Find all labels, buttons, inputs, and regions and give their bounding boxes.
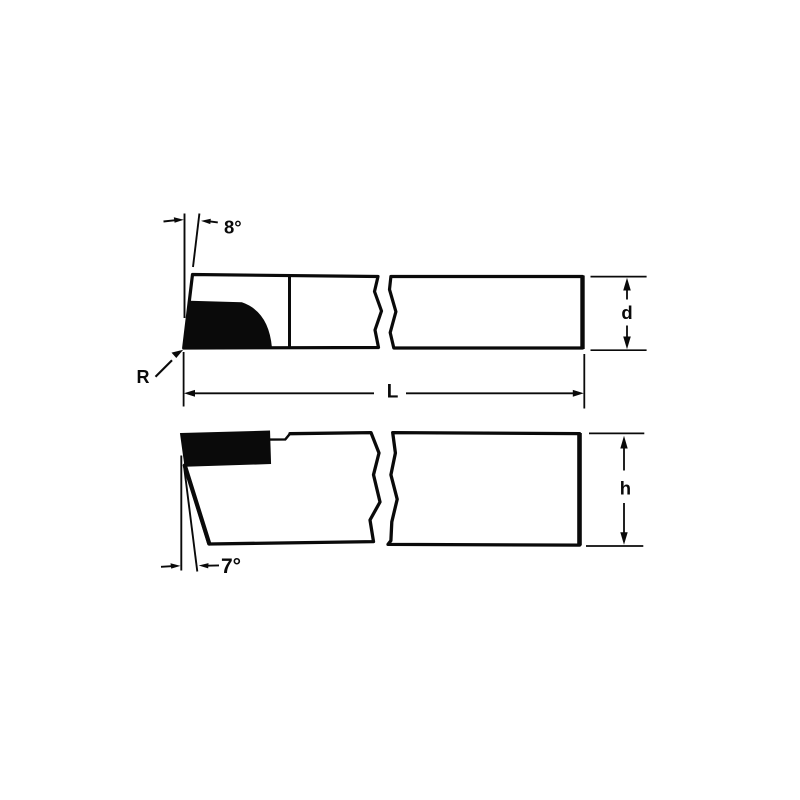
svg-text:R: R	[137, 367, 150, 387]
svg-text:L: L	[387, 382, 399, 403]
svg-text:h: h	[620, 478, 631, 499]
svg-text:d: d	[621, 302, 632, 323]
svg-text:8°: 8°	[224, 217, 242, 238]
svg-text:7°: 7°	[221, 555, 241, 578]
